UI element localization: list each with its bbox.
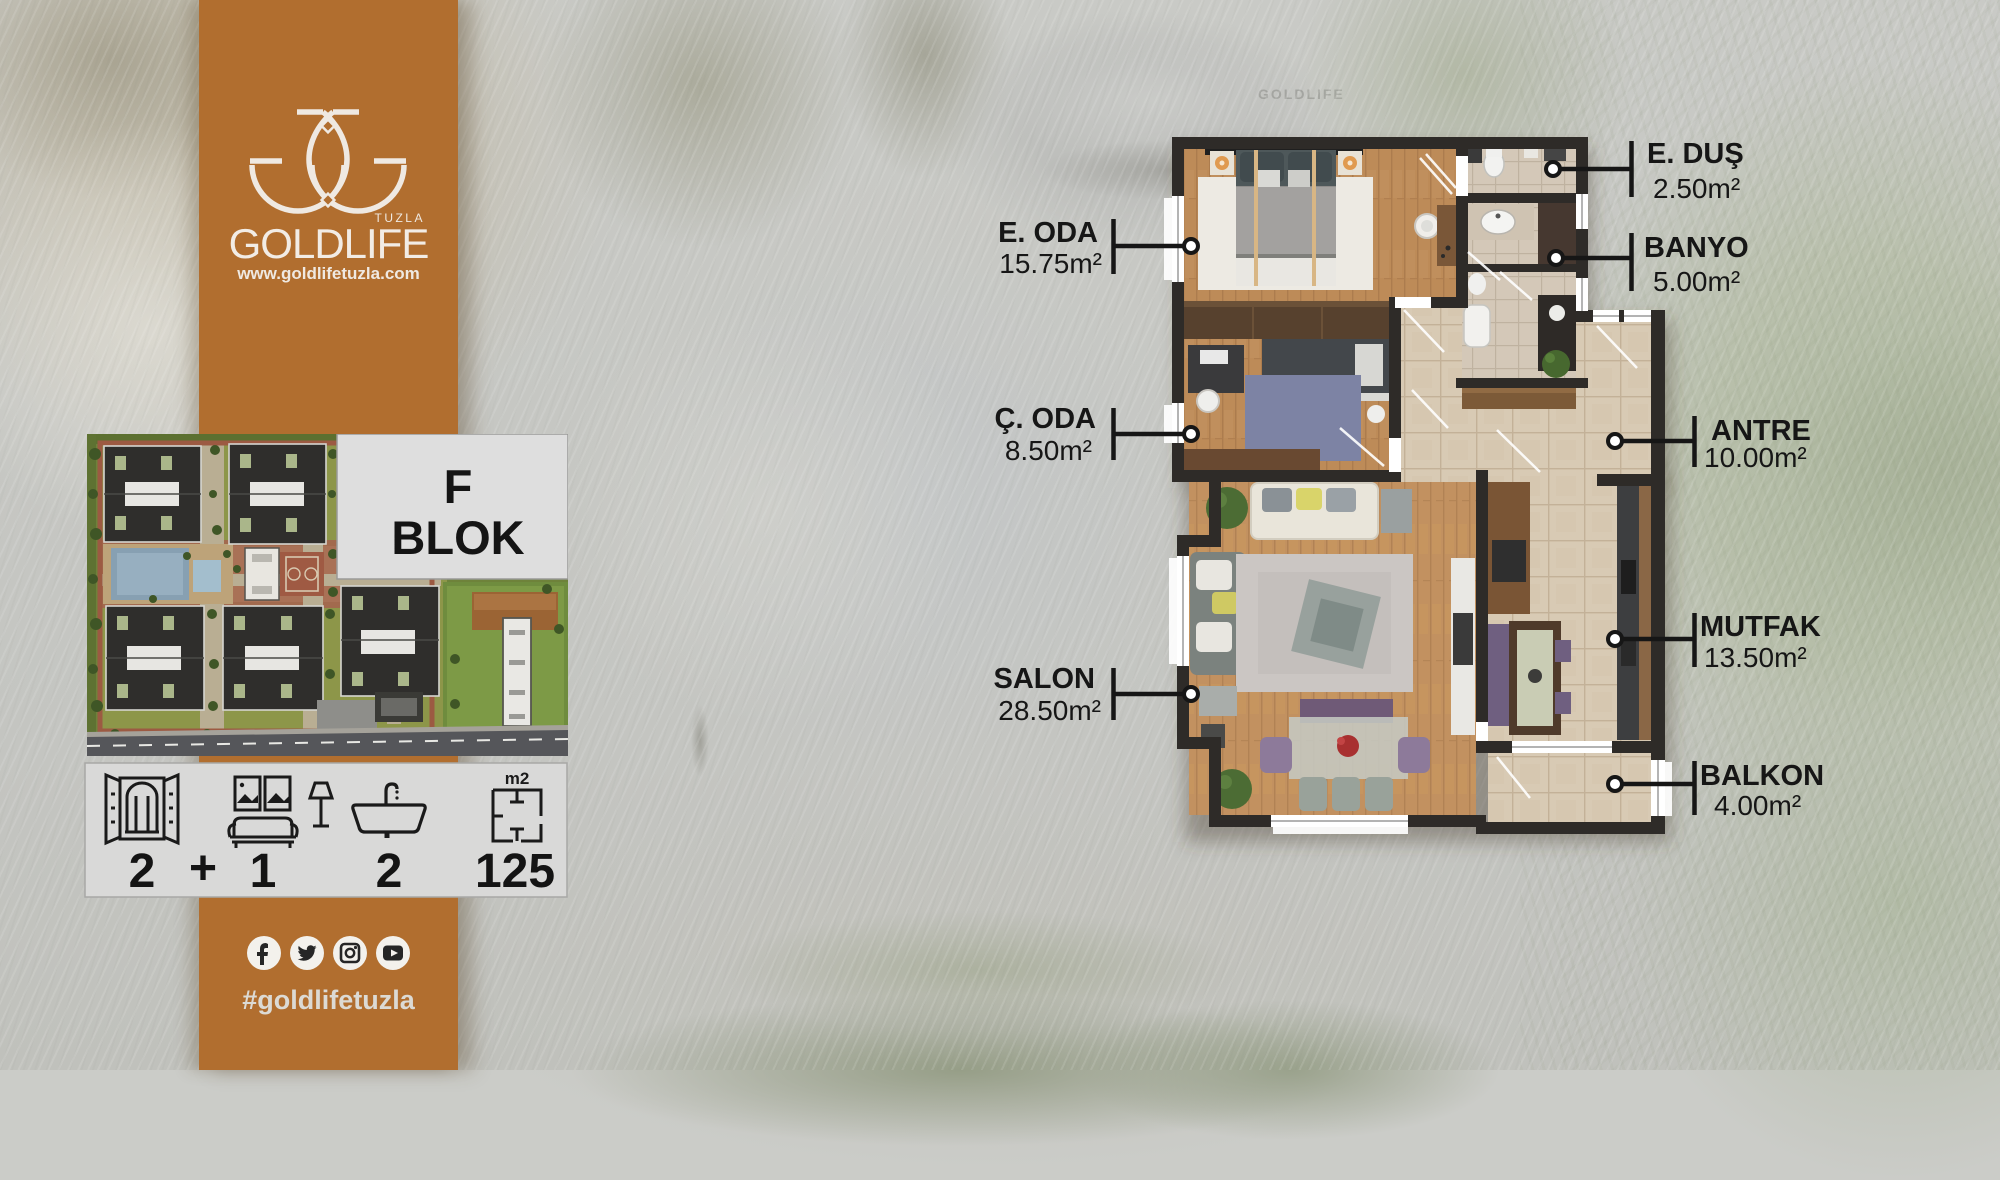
svg-text:E. ODA: E. ODA: [998, 217, 1098, 249]
svg-text:8.50m²: 8.50m²: [1005, 435, 1092, 466]
svg-text:15.75m²: 15.75m²: [999, 248, 1102, 279]
svg-text:Ç. ODA: Ç. ODA: [995, 403, 1097, 435]
svg-text:4.00m²: 4.00m²: [1714, 790, 1801, 821]
svg-text:13.50m²: 13.50m²: [1704, 642, 1807, 673]
svg-text:E. DUŞ: E. DUŞ: [1647, 138, 1744, 170]
svg-text:F: F: [444, 460, 473, 513]
svg-text:m2: m2: [505, 769, 530, 788]
svg-text:1: 1: [250, 845, 277, 898]
svg-text:28.50m²: 28.50m²: [998, 695, 1101, 726]
svg-text:2: 2: [376, 845, 403, 898]
svg-text:125: 125: [475, 845, 555, 898]
svg-text:2.50m²: 2.50m²: [1653, 173, 1740, 204]
svg-text:MUTFAK: MUTFAK: [1700, 611, 1821, 643]
svg-text:10.00m²: 10.00m²: [1704, 442, 1807, 473]
svg-text:BLOK: BLOK: [391, 511, 524, 564]
svg-text:BANYO: BANYO: [1644, 232, 1749, 264]
svg-text:5.00m²: 5.00m²: [1653, 266, 1740, 297]
svg-text:BALKON: BALKON: [1700, 760, 1824, 792]
svg-text:+: +: [189, 842, 217, 895]
svg-text:SALON: SALON: [994, 663, 1096, 695]
svg-text:2: 2: [129, 845, 156, 898]
